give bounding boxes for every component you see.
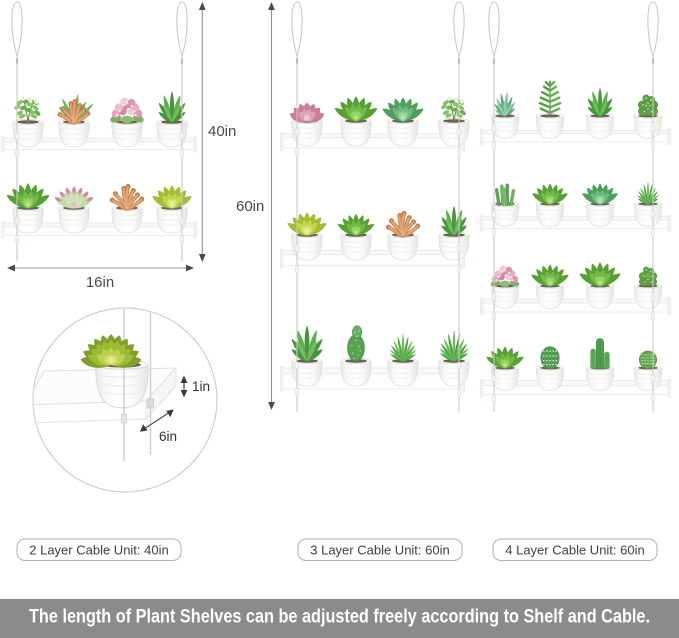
svg-text:3 Layer Cable Unit: 60in: 3 Layer Cable Unit: 60in (310, 543, 449, 558)
svg-text:4 Layer Cable Unit: 60in: 4 Layer Cable Unit: 60in (505, 543, 644, 558)
svg-text:60in: 60in (236, 198, 264, 215)
svg-text:16in: 16in (86, 274, 114, 291)
svg-text:6in: 6in (159, 429, 177, 444)
svg-text:The length of Plant Shelves ca: The length of Plant Shelves can be adjus… (29, 606, 650, 628)
svg-text:40in: 40in (208, 123, 236, 140)
svg-text:2 Layer Cable Unit: 40in: 2 Layer Cable Unit: 40in (29, 543, 168, 558)
svg-text:1in: 1in (192, 379, 210, 394)
